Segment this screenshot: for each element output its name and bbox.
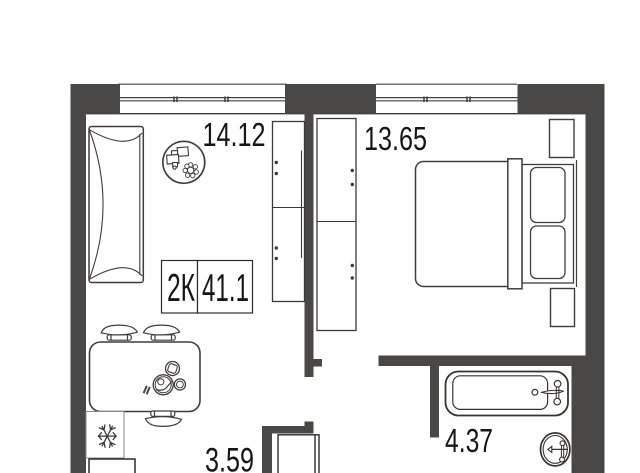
svg-text:14.12: 14.12 xyxy=(203,116,266,154)
svg-text:2К: 2К xyxy=(167,267,195,310)
svg-text:13.65: 13.65 xyxy=(364,120,427,158)
svg-text:3.59: 3.59 xyxy=(205,442,254,473)
svg-text:4.37: 4.37 xyxy=(445,422,493,459)
svg-text:41.1: 41.1 xyxy=(202,267,249,310)
